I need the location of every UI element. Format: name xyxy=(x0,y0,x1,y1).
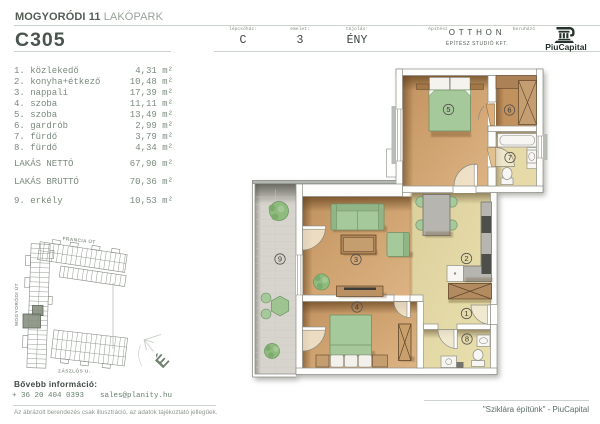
svg-text:1: 1 xyxy=(464,309,468,318)
svg-text:8: 8 xyxy=(465,335,469,344)
svg-text:É: É xyxy=(152,351,173,372)
svg-text:5: 5 xyxy=(446,105,450,114)
svg-text:FRANCIA ÚT: FRANCIA ÚT xyxy=(62,235,96,246)
svg-text:ZÁSZLÓS U.: ZÁSZLÓS U. xyxy=(58,367,91,375)
svg-text:2: 2 xyxy=(464,254,468,263)
svg-text:4: 4 xyxy=(355,303,359,312)
svg-text:9: 9 xyxy=(278,255,282,264)
svg-text:6: 6 xyxy=(507,106,511,115)
svg-text:7: 7 xyxy=(508,153,512,162)
svg-text:3: 3 xyxy=(354,255,358,264)
svg-text:MOGYORÓDI ÚT: MOGYORÓDI ÚT xyxy=(12,283,20,326)
